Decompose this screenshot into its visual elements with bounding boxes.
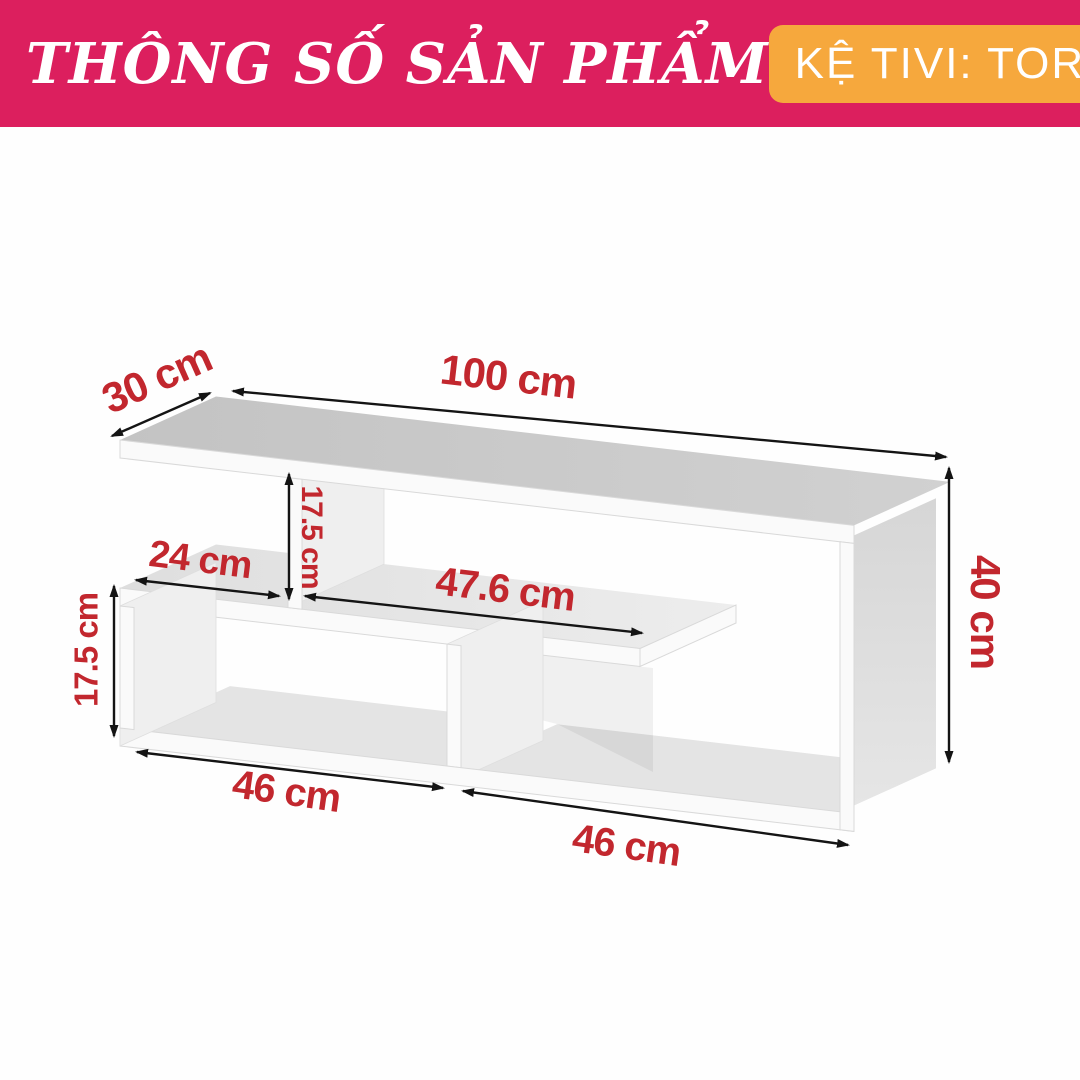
bottom-divider-front-face (447, 644, 461, 768)
dim-label-bottom-left: 46 cm (230, 762, 343, 821)
dim-label-bottom-right: 46 cm (570, 816, 683, 875)
tv-stand-diagram: 30 cm 100 cm 40 cm 17.5 cm 24 cm 47.6 cm… (0, 0, 1080, 1080)
product-spec-sheet: THÔNG SỐ SẢN PHẨM KỆ TIVI: TORAH (0, 0, 1080, 1080)
dim-label-width: 100 cm (438, 346, 579, 408)
right-panel-front-edge (840, 542, 854, 832)
dim-label-lower-opening: 17.5 cm (68, 593, 105, 707)
dim-label-height: 40 cm (962, 555, 1009, 669)
dim-label-upper-opening: 17.5 cm (295, 485, 328, 588)
left-panel-front-face (120, 606, 134, 730)
